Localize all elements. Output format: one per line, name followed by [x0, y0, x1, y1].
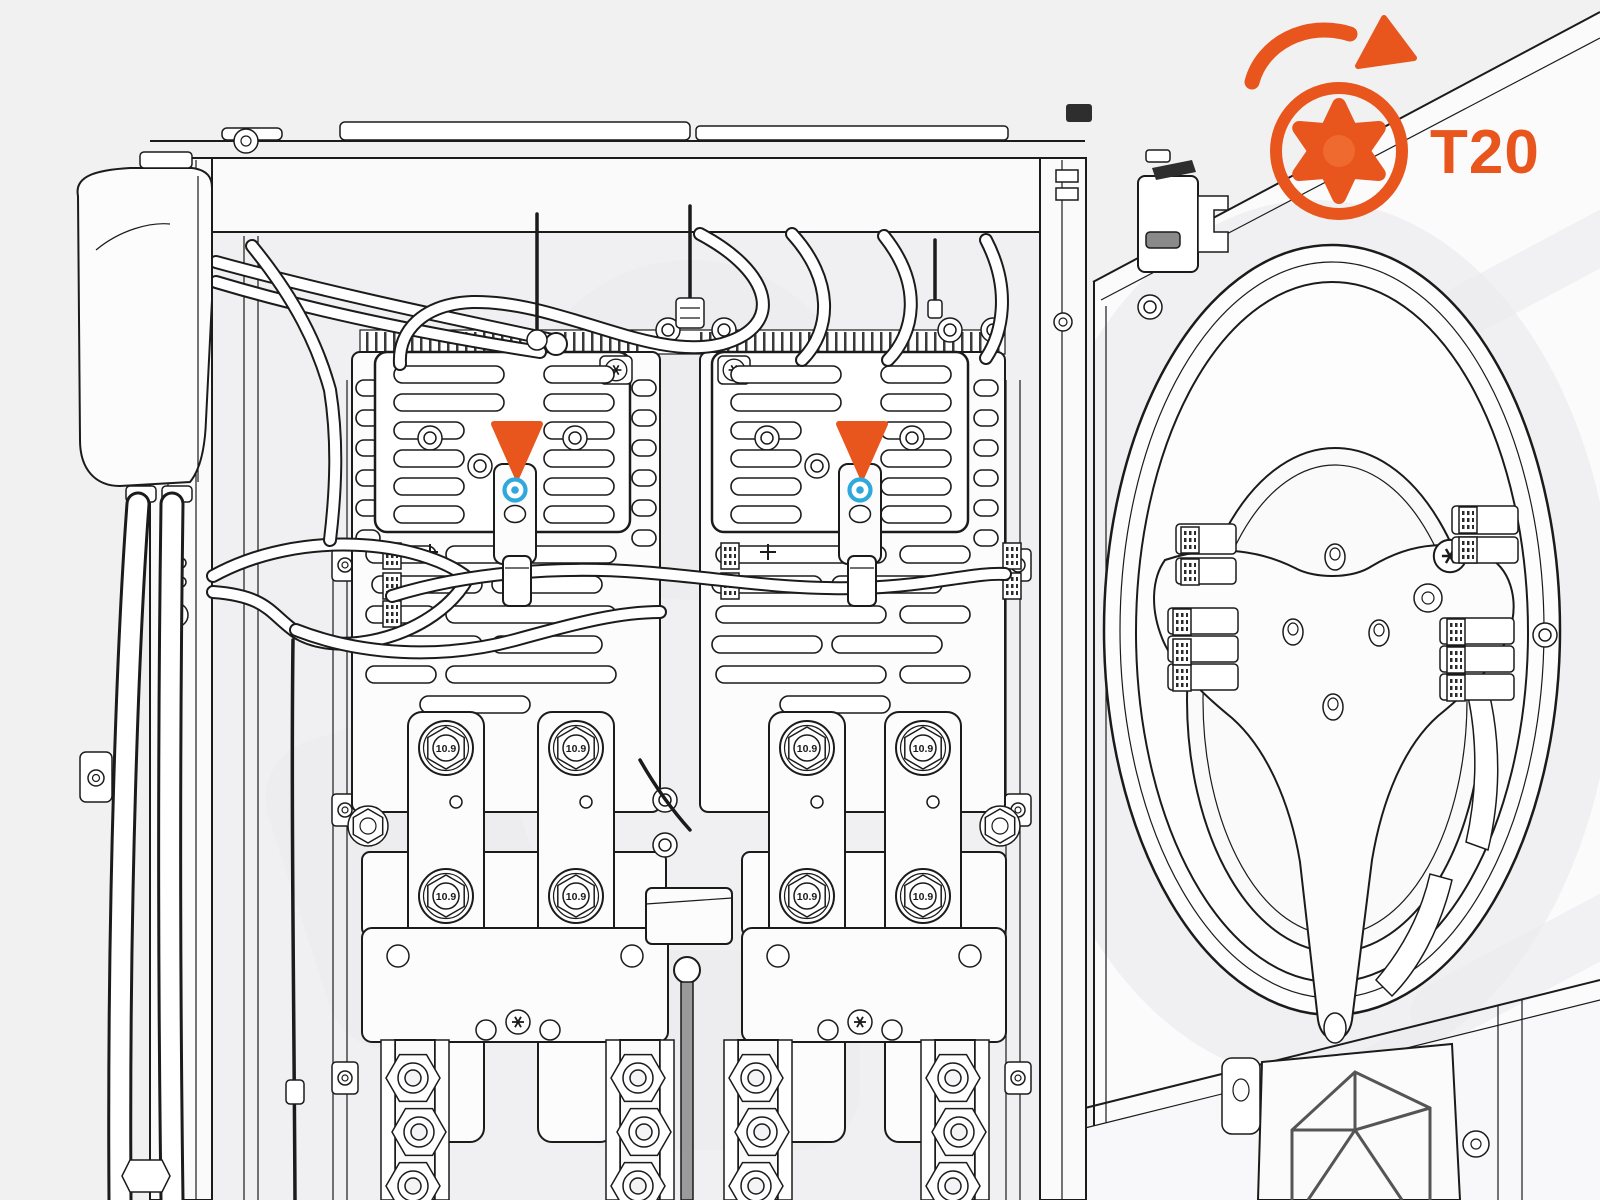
cable-strap-right: [848, 556, 876, 606]
rail-clamp: [332, 1062, 358, 1094]
post-top-cap: [1066, 104, 1092, 122]
assembly-illustration: 10.9 10.9 10.9 10.9 10.9 10.9 10.9 10.9: [0, 0, 1600, 1200]
line-art-canvas: 10.9 10.9 10.9 10.9 10.9 10.9 10.9 10.9: [0, 0, 1600, 1200]
rod-ball: [674, 957, 700, 983]
cable-strap-left: [503, 556, 531, 606]
hex-bolt: 10.9: [549, 721, 603, 775]
rail-bolt: [234, 129, 258, 153]
highlighted-screw: [850, 480, 871, 501]
crossbar-bolt: [348, 806, 388, 846]
gland-column: [921, 1040, 989, 1200]
cable-fitting: [122, 1160, 170, 1192]
top-rail: [150, 158, 1085, 232]
bolt-grade-label: 10.9: [566, 743, 587, 755]
wire-clevis: [527, 330, 547, 350]
bolt-grade-label: 10.9: [797, 891, 818, 903]
bolt-grade-label: 10.9: [436, 891, 457, 903]
triangulated-vent-plate: [1222, 1044, 1489, 1200]
gland-column: [724, 1040, 792, 1200]
gland-column: [606, 1040, 674, 1200]
door-panel: [1015, 12, 1600, 1200]
callout-label: T20: [1430, 118, 1540, 187]
bolt-grade-label: 10.9: [797, 743, 818, 755]
gland-column: [381, 1040, 449, 1200]
bolt-grade-label: 10.9: [436, 743, 457, 755]
rail-clamp: [1005, 1062, 1031, 1094]
crossbar-bolt: [980, 806, 1020, 846]
latch-bolt: [1146, 232, 1180, 248]
wire-connector: [676, 298, 704, 328]
hex-bolt: 10.9: [419, 869, 473, 923]
hex-bolt: 10.9: [896, 869, 950, 923]
plate-tab: [1222, 1058, 1260, 1134]
external-cables: [120, 504, 172, 1200]
cable-end-cap: [545, 333, 567, 355]
cabinet: 10.9 10.9 10.9 10.9 10.9 10.9 10.9 10.9: [78, 104, 1092, 1200]
hex-bolt: 10.9: [896, 721, 950, 775]
plate-screw: [1463, 1131, 1489, 1157]
bolt-grade-label: 10.9: [913, 743, 934, 755]
connector-blocks-left: [1168, 524, 1238, 691]
top-lid: [340, 122, 690, 140]
hex-bolt: 10.9: [780, 869, 834, 923]
bracket-hub: [1414, 584, 1442, 612]
ring-terminal: [653, 833, 677, 857]
hex-bolt: 10.9: [549, 869, 603, 923]
hex-bolt: 10.9: [780, 721, 834, 775]
wire-clip: [286, 1080, 304, 1104]
rim-boss: [1533, 623, 1557, 647]
bolt-grade-label: 10.9: [913, 891, 934, 903]
keyhole: [505, 506, 526, 523]
keyhole: [850, 506, 871, 523]
bolt-grade-label: 10.9: [566, 891, 587, 903]
hex-bolt: 10.9: [419, 721, 473, 775]
highlighted-screw: [505, 480, 526, 501]
rotate-clockwise-icon: [1252, 18, 1414, 82]
